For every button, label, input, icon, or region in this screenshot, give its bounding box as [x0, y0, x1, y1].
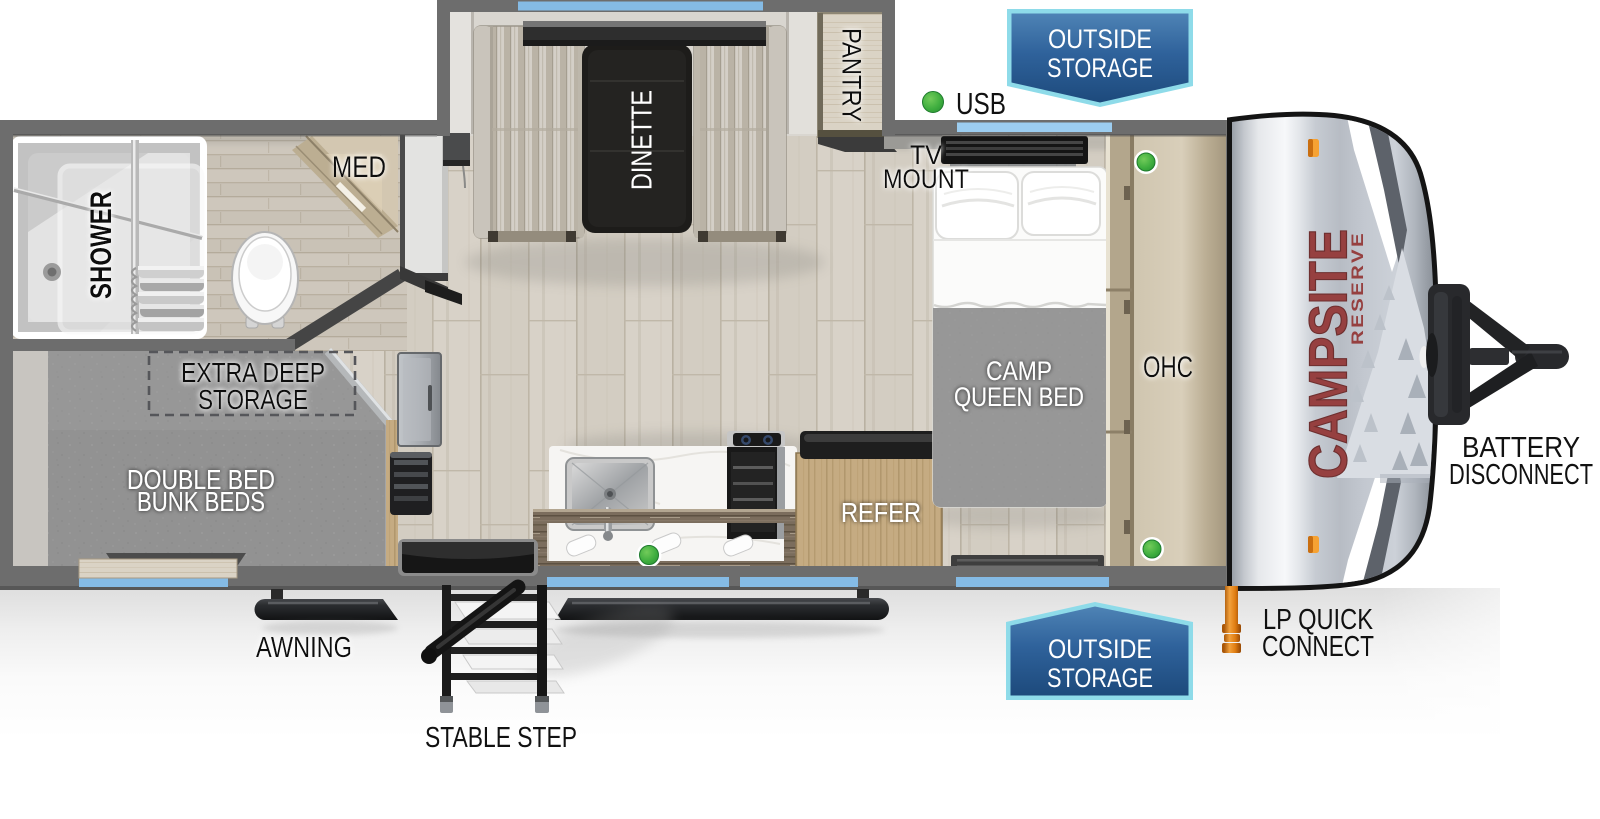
svg-text:STORAGE: STORAGE: [1047, 53, 1153, 83]
svg-text:REFER: REFER: [841, 497, 921, 528]
svg-text:QUEEN BED: QUEEN BED: [954, 382, 1084, 412]
svg-text:BUNK BEDS: BUNK BEDS: [137, 486, 265, 517]
svg-text:SHOWER: SHOWER: [85, 191, 118, 299]
svg-text:OUTSIDE: OUTSIDE: [1048, 634, 1152, 664]
svg-text:PANTRY: PANTRY: [836, 28, 866, 122]
svg-text:AWNING: AWNING: [256, 632, 352, 664]
svg-text:STORAGE: STORAGE: [1047, 663, 1153, 693]
svg-text:DISCONNECT: DISCONNECT: [1449, 459, 1593, 491]
svg-text:USB: USB: [956, 86, 1006, 121]
svg-text:MED: MED: [332, 151, 386, 184]
svg-text:RESERVE: RESERVE: [1348, 231, 1367, 345]
svg-text:OHC: OHC: [1143, 351, 1193, 384]
svg-text:STORAGE: STORAGE: [198, 384, 308, 415]
svg-text:OUTSIDE: OUTSIDE: [1048, 24, 1152, 54]
svg-text:MOUNT: MOUNT: [883, 164, 969, 194]
svg-text:DINETTE: DINETTE: [626, 90, 658, 190]
svg-text:CONNECT: CONNECT: [1262, 631, 1374, 663]
svg-text:STABLE STEP: STABLE STEP: [425, 722, 577, 754]
